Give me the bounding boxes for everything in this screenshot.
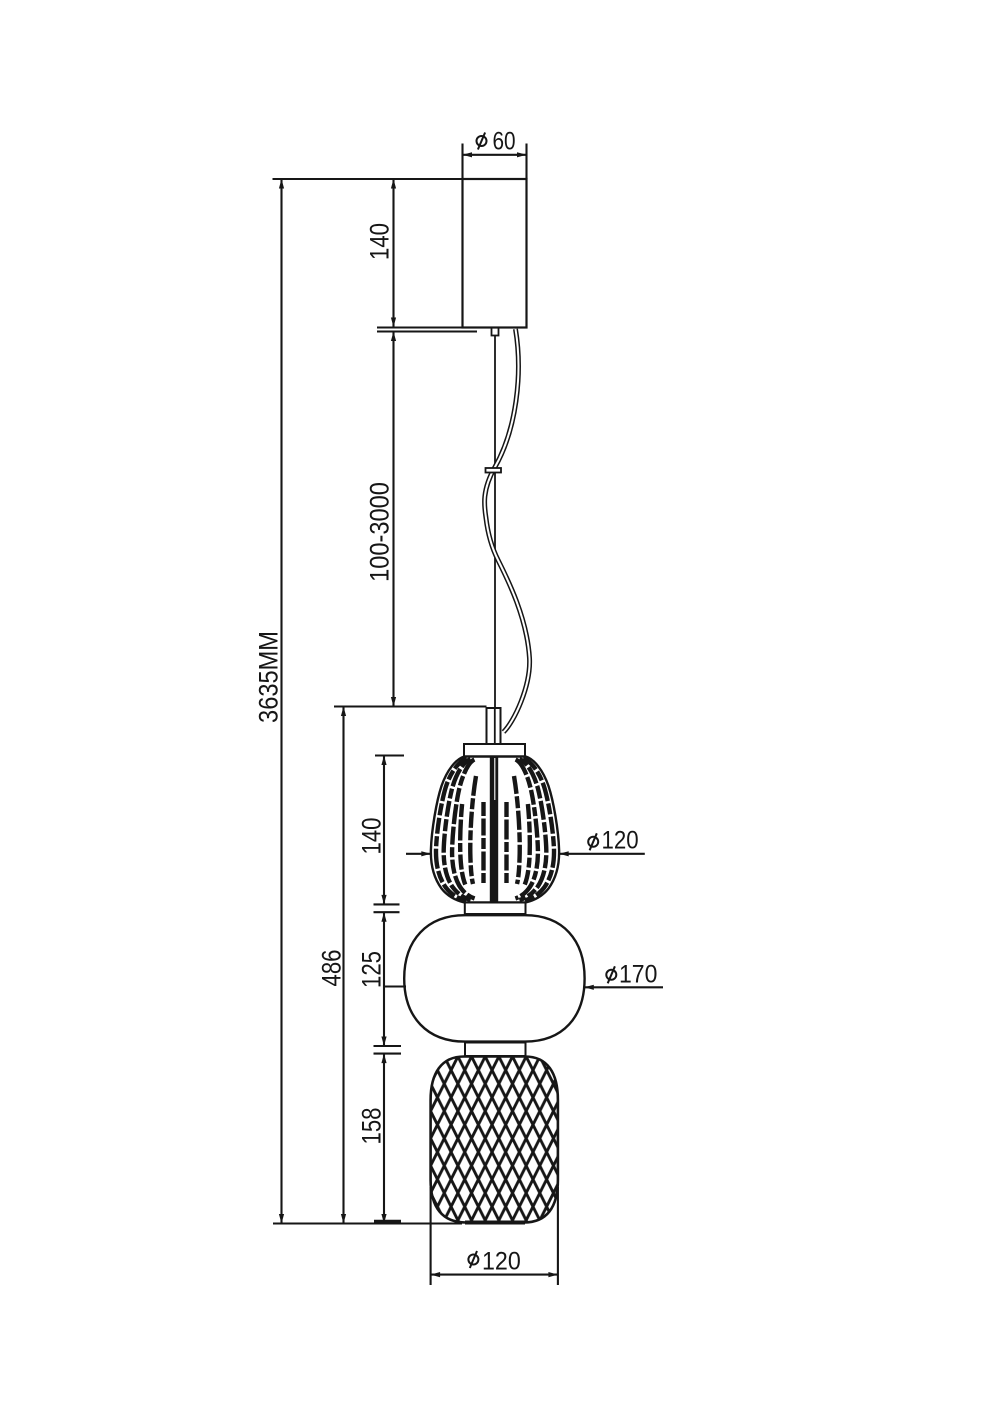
svg-text:140: 140: [366, 223, 396, 260]
svg-text:120: 120: [602, 827, 639, 854]
svg-text:120: 120: [482, 1248, 521, 1276]
svg-text:170: 170: [619, 961, 657, 989]
svg-text:100-3000: 100-3000: [365, 482, 395, 582]
svg-text:3635MM: 3635MM: [254, 631, 284, 723]
svg-text:140: 140: [358, 818, 388, 855]
svg-text:60: 60: [493, 127, 516, 155]
svg-text:486: 486: [318, 950, 348, 987]
svg-text:158: 158: [358, 1108, 388, 1145]
svg-text:125: 125: [358, 951, 388, 988]
